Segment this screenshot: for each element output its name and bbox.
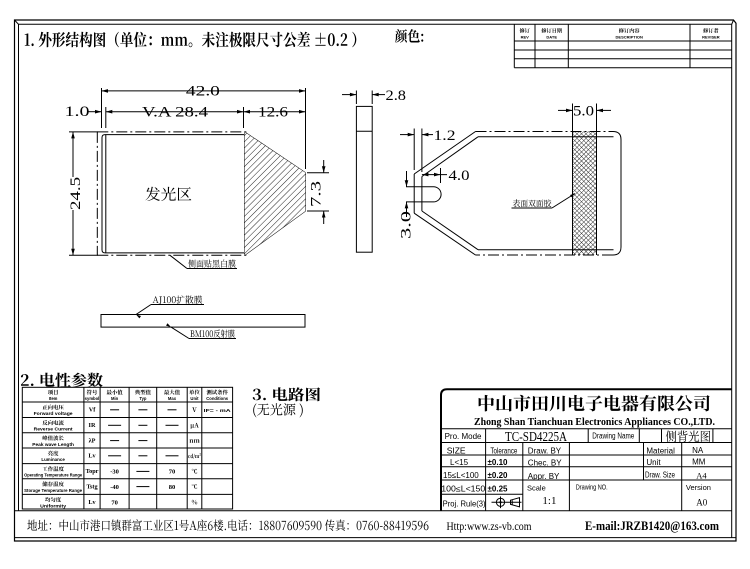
svg-text:Operating Temperature Range: Operating Temperature Range bbox=[24, 473, 83, 478]
svg-text:SIZE: SIZE bbox=[447, 445, 466, 455]
svg-text:A4: A4 bbox=[696, 470, 707, 480]
svg-text:Scale: Scale bbox=[527, 483, 546, 492]
svg-text:Zhong Shan Tianchuan Electroni: Zhong Shan Tianchuan Electronics Applian… bbox=[474, 417, 715, 428]
svg-text:DATE: DATE bbox=[546, 35, 557, 40]
svg-text:4.0: 4.0 bbox=[449, 168, 470, 184]
svg-text:IF= - mA: IF= - mA bbox=[204, 408, 232, 413]
svg-text:IR: IR bbox=[89, 422, 96, 429]
svg-text:15≤L<100: 15≤L<100 bbox=[443, 471, 479, 480]
svg-text:±0.20: ±0.20 bbox=[488, 471, 509, 480]
svg-text:Reverse Current: Reverse Current bbox=[34, 427, 74, 432]
svg-text:12.6: 12.6 bbox=[258, 104, 288, 120]
svg-text:80: 80 bbox=[169, 484, 176, 491]
svg-text:70: 70 bbox=[169, 469, 176, 476]
svg-text:24.5: 24.5 bbox=[68, 177, 84, 210]
svg-text:5.0: 5.0 bbox=[573, 103, 594, 119]
svg-text:1:1: 1:1 bbox=[542, 495, 556, 507]
svg-text:MM: MM bbox=[692, 457, 706, 466]
svg-text:±0.10: ±0.10 bbox=[488, 458, 509, 467]
svg-text:Luminance: Luminance bbox=[41, 457, 65, 462]
svg-text:E-mail:JRZB1420@163.com: E-mail:JRZB1420@163.com bbox=[585, 519, 720, 533]
svg-text:Pro. Mode: Pro. Mode bbox=[445, 432, 482, 441]
svg-text:Item: Item bbox=[49, 396, 58, 401]
svg-text:Min: Min bbox=[111, 396, 119, 401]
svg-text:Version: Version bbox=[686, 483, 711, 492]
svg-text:TC-SD4225A: TC-SD4225A bbox=[505, 429, 567, 444]
svg-text:Unit: Unit bbox=[190, 396, 199, 401]
svg-text:Lv: Lv bbox=[88, 453, 96, 460]
svg-text:λP: λP bbox=[89, 437, 96, 444]
svg-text:Conditions: Conditions bbox=[206, 396, 229, 401]
svg-text:Tolerance: Tolerance bbox=[490, 446, 517, 455]
svg-text:REV: REV bbox=[521, 35, 530, 40]
svg-text:Topr: Topr bbox=[86, 468, 99, 475]
svg-text:Max: Max bbox=[168, 396, 177, 401]
svg-text:Tstg: Tstg bbox=[86, 483, 98, 490]
svg-text:Lv: Lv bbox=[88, 499, 96, 506]
svg-text:Http:www.zs-vb.com: Http:www.zs-vb.com bbox=[447, 519, 533, 533]
svg-text:Forward voltage: Forward voltage bbox=[34, 411, 74, 416]
svg-text:Chec. BY: Chec. BY bbox=[528, 458, 562, 467]
svg-text:L<15: L<15 bbox=[450, 458, 469, 467]
svg-text:Uniformity: Uniformity bbox=[40, 503, 67, 508]
svg-text:Draw. BY: Draw. BY bbox=[528, 447, 562, 456]
svg-text:3.0: 3.0 bbox=[399, 211, 415, 239]
svg-text:2.8: 2.8 bbox=[386, 88, 407, 104]
svg-text:Appr. BY: Appr. BY bbox=[528, 472, 560, 481]
svg-text:A0: A0 bbox=[696, 497, 707, 507]
svg-text:42.0: 42.0 bbox=[186, 84, 220, 100]
svg-text:-30: -30 bbox=[110, 469, 119, 476]
svg-text:DESCRIPTION: DESCRIPTION bbox=[616, 35, 643, 40]
svg-text:Vf: Vf bbox=[89, 407, 96, 414]
svg-text:Drawing Name: Drawing Name bbox=[592, 432, 634, 441]
svg-text:Proj. Rule(3): Proj. Rule(3) bbox=[443, 498, 486, 508]
svg-text:V.A 28.4: V.A 28.4 bbox=[142, 104, 209, 120]
svg-text:100≤L<150: 100≤L<150 bbox=[441, 485, 486, 494]
svg-text:1.2: 1.2 bbox=[434, 128, 456, 144]
svg-text:1.0: 1.0 bbox=[65, 104, 90, 120]
svg-text:±0.25: ±0.25 bbox=[488, 485, 509, 494]
svg-text:Material: Material bbox=[646, 446, 675, 455]
svg-text:Typ: Typ bbox=[139, 396, 147, 401]
svg-text:REVISER: REVISER bbox=[702, 35, 720, 40]
svg-text:Storage Temperature Range: Storage Temperature Range bbox=[24, 488, 83, 493]
svg-text:Peak wave Length: Peak wave Length bbox=[32, 442, 74, 447]
svg-text:NA: NA bbox=[692, 446, 704, 455]
svg-text:Draw. Size: Draw. Size bbox=[645, 470, 675, 479]
svg-text:symbol: symbol bbox=[85, 396, 100, 401]
svg-text:7.3: 7.3 bbox=[309, 181, 325, 207]
svg-text:Drawing NO.: Drawing NO. bbox=[576, 482, 608, 491]
svg-text:-40: -40 bbox=[110, 484, 119, 491]
svg-text:Unit: Unit bbox=[646, 458, 661, 467]
svg-text:70: 70 bbox=[111, 499, 118, 506]
